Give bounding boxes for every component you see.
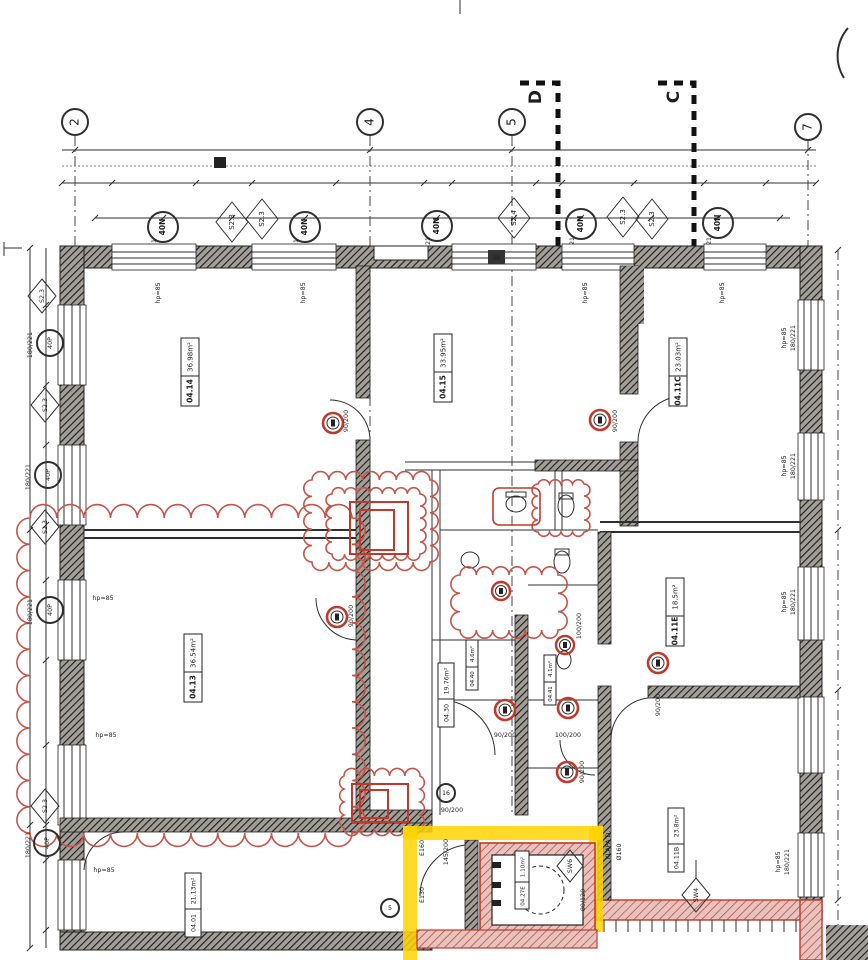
svg-text:4.1m²: 4.1m² [547, 661, 554, 677]
sill-label: hp=85 [582, 282, 589, 303]
sill-label: hp=85 [781, 327, 788, 348]
floor-plan-canvas: 2 4 5 7 D C S2.3 S2.3 S2.4 S2.3 S2.3 40N… [0, 0, 868, 960]
diamond-tag: S2.3 [648, 211, 656, 227]
window-dim: 180/221 [25, 832, 32, 858]
room-label-04-40: 04.404.6m² [466, 640, 478, 690]
room-label-04-13: 04.1336.54m² [184, 634, 202, 702]
left-wall-tags: S2.3 S2.3 S2.3 S2.3 40P 40P 40P 40P 180/… [25, 279, 63, 858]
window-dim: 180/221 [25, 464, 32, 490]
svg-text:18.5m²: 18.5m² [672, 584, 680, 609]
svg-text:33.95m²: 33.95m² [440, 338, 448, 368]
diamond-tag: S2.3 [258, 211, 266, 227]
window-dim: 180/221 [790, 453, 797, 479]
room-label-04-27e: 04.27E1.10m² [515, 851, 529, 909]
door-size: 100/200 [555, 732, 581, 739]
sill-label: hp=85 [155, 282, 162, 303]
diamond-tag: S2.3 [228, 214, 236, 230]
circle-tag-16: 16 [442, 790, 450, 797]
corner-arc [838, 28, 848, 78]
axis-label-5: 5 [505, 118, 519, 126]
vent-label-e130: E130 [419, 887, 426, 903]
axis-label-4: 4 [363, 118, 377, 126]
room-label-04-01: 04.0121.13m² [185, 873, 201, 937]
svg-text:04.13: 04.13 [189, 675, 198, 699]
room-label-04-15: 04.1533.95m² [434, 334, 452, 402]
svg-text:21.13m²: 21.13m² [191, 877, 198, 904]
svg-text:4.6m²: 4.6m² [469, 646, 476, 662]
diamond-tag-sw4: SW4 [693, 888, 700, 902]
room-label-04-30: 04.3019.76m² [438, 663, 454, 727]
sill-label: hp=85 [719, 282, 726, 303]
svg-text:36.54m²: 36.54m² [190, 638, 198, 668]
window-tag: 40N [158, 219, 167, 236]
svg-text:04.30: 04.30 [444, 704, 451, 722]
door-arc [84, 832, 124, 870]
diamond-tag: S2.3 [39, 289, 46, 303]
axis-label-2: 2 [68, 118, 82, 126]
smoke-flap-label: KLAPA D. [605, 831, 612, 860]
highlight-top [403, 826, 603, 840]
circle-tag-5: 5 [388, 905, 392, 912]
svg-text:04.01: 04.01 [191, 914, 198, 932]
door-size: 90/200 [348, 605, 355, 627]
door-size-145: 145/200 [443, 839, 450, 865]
window-tag: 40N [576, 216, 585, 233]
highlight-left [403, 826, 417, 960]
elevator-door-size: 80/120 [580, 889, 587, 911]
axis-label-7: 7 [801, 123, 815, 131]
svg-text:23.03m²: 23.03m² [675, 342, 683, 372]
svg-text:04.41: 04.41 [548, 686, 554, 701]
exterior-walls: 38 [58, 244, 868, 960]
svg-text:04.14: 04.14 [186, 379, 195, 403]
svg-text:36.98m²: 36.98m² [187, 342, 195, 372]
svg-text:04.11E: 04.11E [671, 617, 680, 646]
diamond-tag: S2.3 [42, 520, 49, 534]
svg-text:19.76m²: 19.76m² [444, 667, 451, 694]
sill-label: hp=85 [92, 595, 113, 602]
sill-label: hp=85 [300, 282, 307, 303]
room-label-04-11c: 04.11C23.03m² [669, 338, 687, 406]
door-size: 90/200 [343, 410, 350, 432]
window-tag: 40P [45, 469, 52, 481]
door-arc [330, 400, 370, 440]
vent-label-e160: E160 [419, 840, 426, 856]
revision-cloud-duct-outer [304, 472, 438, 571]
door-size: 90/200 [494, 732, 516, 739]
diamond-tag: S2.3 [42, 398, 49, 412]
room-label-04-41: 04.414.1m² [544, 655, 556, 705]
window-tag: 40N [300, 219, 309, 236]
window-tag: 40N [713, 215, 722, 232]
sill-label: hp=85 [781, 455, 788, 476]
window-tag: 40P [47, 604, 54, 616]
floor-plan-drawing: 2 4 5 7 D C S2.3 S2.3 S2.4 S2.3 S2.3 40N… [0, 0, 868, 960]
sill-label: hp=85 [95, 732, 116, 739]
window-dim: 180/221 [27, 599, 34, 625]
smoke-flap-diameter: Ø160 [615, 844, 623, 861]
svg-text:1.10m²: 1.10m² [520, 857, 527, 877]
room-label-04-11e: 04.11E18.5m² [666, 578, 684, 646]
diamond-tag: S2.4 [510, 210, 518, 226]
door-size: 100/200 [576, 613, 583, 639]
room-label-04-11b: 04.11B23.8m² [668, 808, 684, 872]
svg-text:04.27E: 04.27E [521, 886, 527, 906]
window-dim: 180/221 [784, 849, 791, 875]
svg-text:04.40: 04.40 [470, 671, 476, 687]
window-dim: 180/221 [27, 332, 34, 358]
svg-text:23.8m²: 23.8m² [674, 814, 681, 837]
svg-text:04.11C: 04.11C [674, 376, 683, 406]
window-dim: 180/221 [790, 325, 797, 351]
section-label-d: D [526, 90, 546, 104]
section-markers: D C [520, 83, 694, 252]
sill-label: hp=85 [775, 851, 782, 872]
door-size: 90/200 [579, 761, 586, 783]
door-size: 90/200 [441, 807, 463, 814]
window-tag: 40N [432, 218, 441, 235]
page-margin-marks [460, 0, 848, 78]
revision-marks [17, 472, 590, 847]
diamond-tag: S2.3 [619, 209, 627, 225]
section-label-c: C [664, 91, 684, 103]
door-arc [611, 698, 648, 740]
diamond-tag: S2.3 [42, 799, 49, 813]
room-label-04-14: 04.1436.98m² [181, 338, 199, 406]
sill-label: hp=85 [93, 867, 114, 874]
sill-label: hp=85 [781, 591, 788, 612]
door-size: 90/200 [655, 694, 662, 716]
door-size: 90/200 [612, 410, 619, 432]
svg-text:04.11B: 04.11B [674, 847, 681, 869]
window-dim: 180/221 [790, 589, 797, 615]
window-tag: 40P [47, 337, 54, 349]
svg-text:04.15: 04.15 [439, 375, 448, 399]
wall-box-38: 38 [492, 255, 500, 262]
diamond-tag-sw6: SW6 [567, 859, 574, 873]
revision-cloud-sanitary [451, 567, 567, 638]
window-tag: 40P [44, 837, 51, 849]
